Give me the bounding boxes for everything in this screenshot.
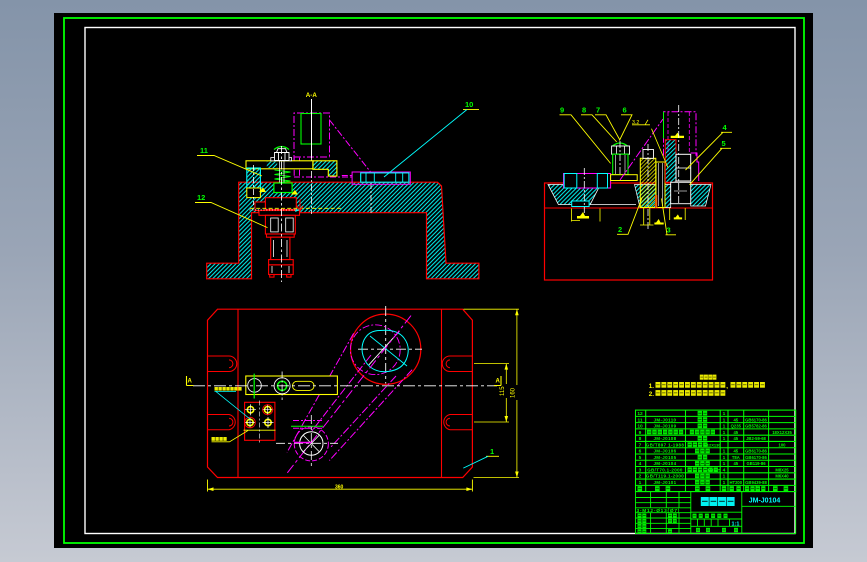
svg-text:A: A xyxy=(496,379,501,385)
svg-text:HT200: HT200 xyxy=(730,480,743,485)
svg-text:10: 10 xyxy=(465,100,473,109)
svg-text:45: 45 xyxy=(733,461,738,466)
svg-text:GB9439-88: GB9439-88 xyxy=(745,480,767,485)
svg-text:1: 1 xyxy=(723,455,726,461)
svg-text:11: 11 xyxy=(637,417,642,423)
svg-text:4: 4 xyxy=(723,468,726,474)
svg-text:1: 1 xyxy=(723,430,726,436)
svg-text:GB6170-86: GB6170-86 xyxy=(745,449,767,454)
svg-text:2: 2 xyxy=(618,225,622,234)
svg-text:JM-J0110: JM-J0110 xyxy=(654,417,677,422)
svg-text:JM-J0104: JM-J0104 xyxy=(653,461,676,466)
svg-text:JM-J0101: JM-J0101 xyxy=(653,480,676,485)
svg-text:GB/T70.1-2000: GB/T70.1-2000 xyxy=(647,468,683,473)
svg-text:45: 45 xyxy=(733,436,738,441)
svg-text:1: 1 xyxy=(723,436,726,442)
svg-text:2.: 2. xyxy=(649,391,654,398)
svg-text:T8A: T8A xyxy=(732,455,740,460)
svg-text:5: 5 xyxy=(639,455,642,461)
svg-text:18X12X35: 18X12X35 xyxy=(772,430,792,435)
svg-text:7: 7 xyxy=(639,442,642,448)
svg-text:,: , xyxy=(726,383,728,390)
svg-text:JB2-59-68: JB2-59-68 xyxy=(746,436,766,441)
svg-text:3: 3 xyxy=(639,468,642,474)
svg-text:8: 8 xyxy=(639,436,642,442)
svg-text:1.: 1. xyxy=(649,383,654,390)
svg-text:7: 7 xyxy=(596,106,600,115)
svg-text:11: 11 xyxy=(200,146,208,155)
svg-text:360: 360 xyxy=(335,485,344,491)
svg-text:1: 1 xyxy=(723,424,726,430)
svg-text:6: 6 xyxy=(639,449,642,455)
svg-text:10: 10 xyxy=(637,424,643,430)
svg-text:160: 160 xyxy=(511,387,517,398)
svg-text:1:1: 1:1 xyxy=(732,522,740,528)
svg-text:1: 1 xyxy=(723,449,726,455)
svg-text:GB119-86: GB119-86 xyxy=(746,461,766,466)
svg-text:M12X130: M12X130 xyxy=(703,442,721,447)
svg-text:1: 1 xyxy=(639,480,642,486)
svg-text:12: 12 xyxy=(197,193,205,202)
svg-text:A-A: A-A xyxy=(306,92,318,99)
svg-text:1: 1 xyxy=(723,417,726,423)
svg-text:GB6170-86: GB6170-86 xyxy=(745,455,767,460)
svg-text:9: 9 xyxy=(560,106,564,115)
svg-text:100: 100 xyxy=(779,442,787,447)
svg-text:5: 5 xyxy=(722,139,726,148)
svg-text:9: 9 xyxy=(639,430,642,436)
svg-text:3-M12-Ø13(Ø7): 3-M12-Ø13(Ø7) xyxy=(637,508,681,514)
svg-text:JM-J0104: JM-J0104 xyxy=(749,498,781,505)
svg-text:M6X40: M6X40 xyxy=(775,474,789,479)
svg-text:M8X25: M8X25 xyxy=(708,468,721,473)
svg-text:1: 1 xyxy=(490,447,494,456)
svg-text:JM-J0106: JM-J0106 xyxy=(653,449,676,454)
svg-text:115: 115 xyxy=(500,386,506,396)
svg-text:12: 12 xyxy=(637,411,643,417)
svg-text:6: 6 xyxy=(623,106,627,115)
svg-text:GB5782-86: GB5782-86 xyxy=(745,424,767,429)
svg-text:JM-J0105: JM-J0105 xyxy=(653,455,676,460)
svg-text:2: 2 xyxy=(639,474,642,480)
svg-text:1: 1 xyxy=(723,474,726,480)
svg-text:GB/T897 1-1988: GB/T897 1-1988 xyxy=(646,442,685,447)
svg-text:1: 1 xyxy=(723,480,726,486)
svg-text:Q235: Q235 xyxy=(731,424,742,429)
svg-text:4: 4 xyxy=(639,461,642,467)
svg-text:45: 45 xyxy=(733,430,738,435)
svg-text:4: 4 xyxy=(723,123,728,132)
svg-text:1: 1 xyxy=(723,411,726,417)
svg-text:JM-J0108: JM-J0108 xyxy=(653,436,676,441)
svg-text:45: 45 xyxy=(733,417,738,422)
svg-text:GB6170-86: GB6170-86 xyxy=(745,417,767,422)
svg-text:JM-J0109: JM-J0109 xyxy=(653,424,676,429)
svg-text:A: A xyxy=(188,379,193,385)
svg-text:M8X25: M8X25 xyxy=(775,468,789,473)
svg-text:1: 1 xyxy=(723,461,726,467)
svg-text:GB/T119.1-2000: GB/T119.1-2000 xyxy=(646,474,684,479)
svg-text:8: 8 xyxy=(582,106,586,115)
svg-text:45: 45 xyxy=(733,449,738,454)
